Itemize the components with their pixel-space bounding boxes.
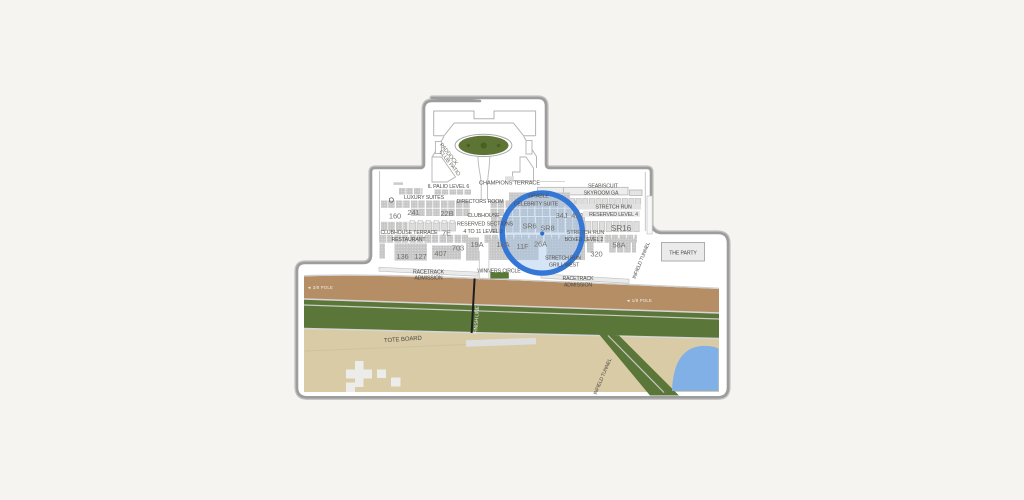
svg-text:10A: 10A [497, 240, 510, 249]
svg-text:SEABISCUIT: SEABISCUIT [588, 184, 619, 190]
svg-text:RESTAURANT: RESTAURANT [392, 237, 427, 243]
svg-text:241: 241 [407, 208, 419, 217]
svg-text:160: 160 [389, 212, 401, 221]
svg-text:703: 703 [452, 243, 464, 252]
svg-text:11F: 11F [516, 242, 529, 251]
svg-text:4 TO 11 LEVEL 3: 4 TO 11 LEVEL 3 [463, 229, 502, 235]
svg-text:SR6: SR6 [522, 222, 536, 231]
svg-text:CLUBHOUSE: CLUBHOUSE [467, 213, 500, 219]
svg-text:GRILL WEST: GRILL WEST [549, 262, 580, 268]
svg-text:SR16: SR16 [611, 223, 632, 233]
svg-text:41J: 41J [571, 211, 583, 220]
svg-text:SR8: SR8 [540, 224, 554, 233]
svg-text:136: 136 [396, 252, 408, 261]
svg-text:CHAMPIONS TERRACE: CHAMPIONS TERRACE [479, 181, 540, 187]
svg-text:RESERVED SECTIONS: RESERVED SECTIONS [457, 222, 514, 228]
svg-text:ADMISSION: ADMISSION [564, 283, 592, 289]
svg-text:LUXURY SUITES: LUXURY SUITES [404, 195, 445, 201]
svg-text:GRABLE: GRABLE [528, 193, 549, 199]
svg-text:STRETCH RUN: STRETCH RUN [545, 255, 581, 261]
svg-text:RACETRACK: RACETRACK [563, 276, 595, 282]
svg-text:O: O [389, 197, 395, 204]
svg-text:SKYROOM GA: SKYROOM GA [584, 191, 619, 197]
svg-text:CELEBRITY SUITE: CELEBRITY SUITE [514, 201, 559, 207]
svg-text:◄ 1/8 POLE: ◄ 1/8 POLE [626, 298, 652, 303]
svg-text:407: 407 [434, 249, 446, 258]
svg-text:58A: 58A [613, 241, 626, 250]
svg-text:BOXES LEVEL 2: BOXES LEVEL 2 [565, 237, 604, 243]
svg-text:◄ 3/8 POLE: ◄ 3/8 POLE [307, 285, 333, 290]
svg-text:STRETCH RUN: STRETCH RUN [567, 230, 605, 236]
svg-text:RACETRACK: RACETRACK [413, 269, 445, 275]
svg-text:7E: 7E [442, 229, 451, 238]
svg-text:WINNERS CIRCLE: WINNERS CIRCLE [477, 268, 521, 274]
svg-text:ADMISSION: ADMISSION [414, 276, 442, 282]
svg-text:DIRECTORS ROOM: DIRECTORS ROOM [457, 199, 504, 205]
svg-text:STRETCH RUN: STRETCH RUN [595, 204, 632, 210]
svg-text:RESERVED LEVEL 4: RESERVED LEVEL 4 [589, 212, 638, 218]
svg-text:19A: 19A [471, 240, 484, 249]
svg-text:34J: 34J [556, 211, 568, 220]
svg-text:22B: 22B [441, 209, 454, 218]
svg-text:IL PALIO LEVEL 6: IL PALIO LEVEL 6 [428, 184, 470, 190]
svg-text:320: 320 [590, 250, 602, 259]
svg-text:127: 127 [414, 252, 426, 261]
svg-text:26A: 26A [534, 240, 547, 249]
svg-text:CLUBHOUSE TERRACE: CLUBHOUSE TERRACE [380, 230, 438, 236]
svg-text:THE PARTY: THE PARTY [669, 251, 697, 257]
